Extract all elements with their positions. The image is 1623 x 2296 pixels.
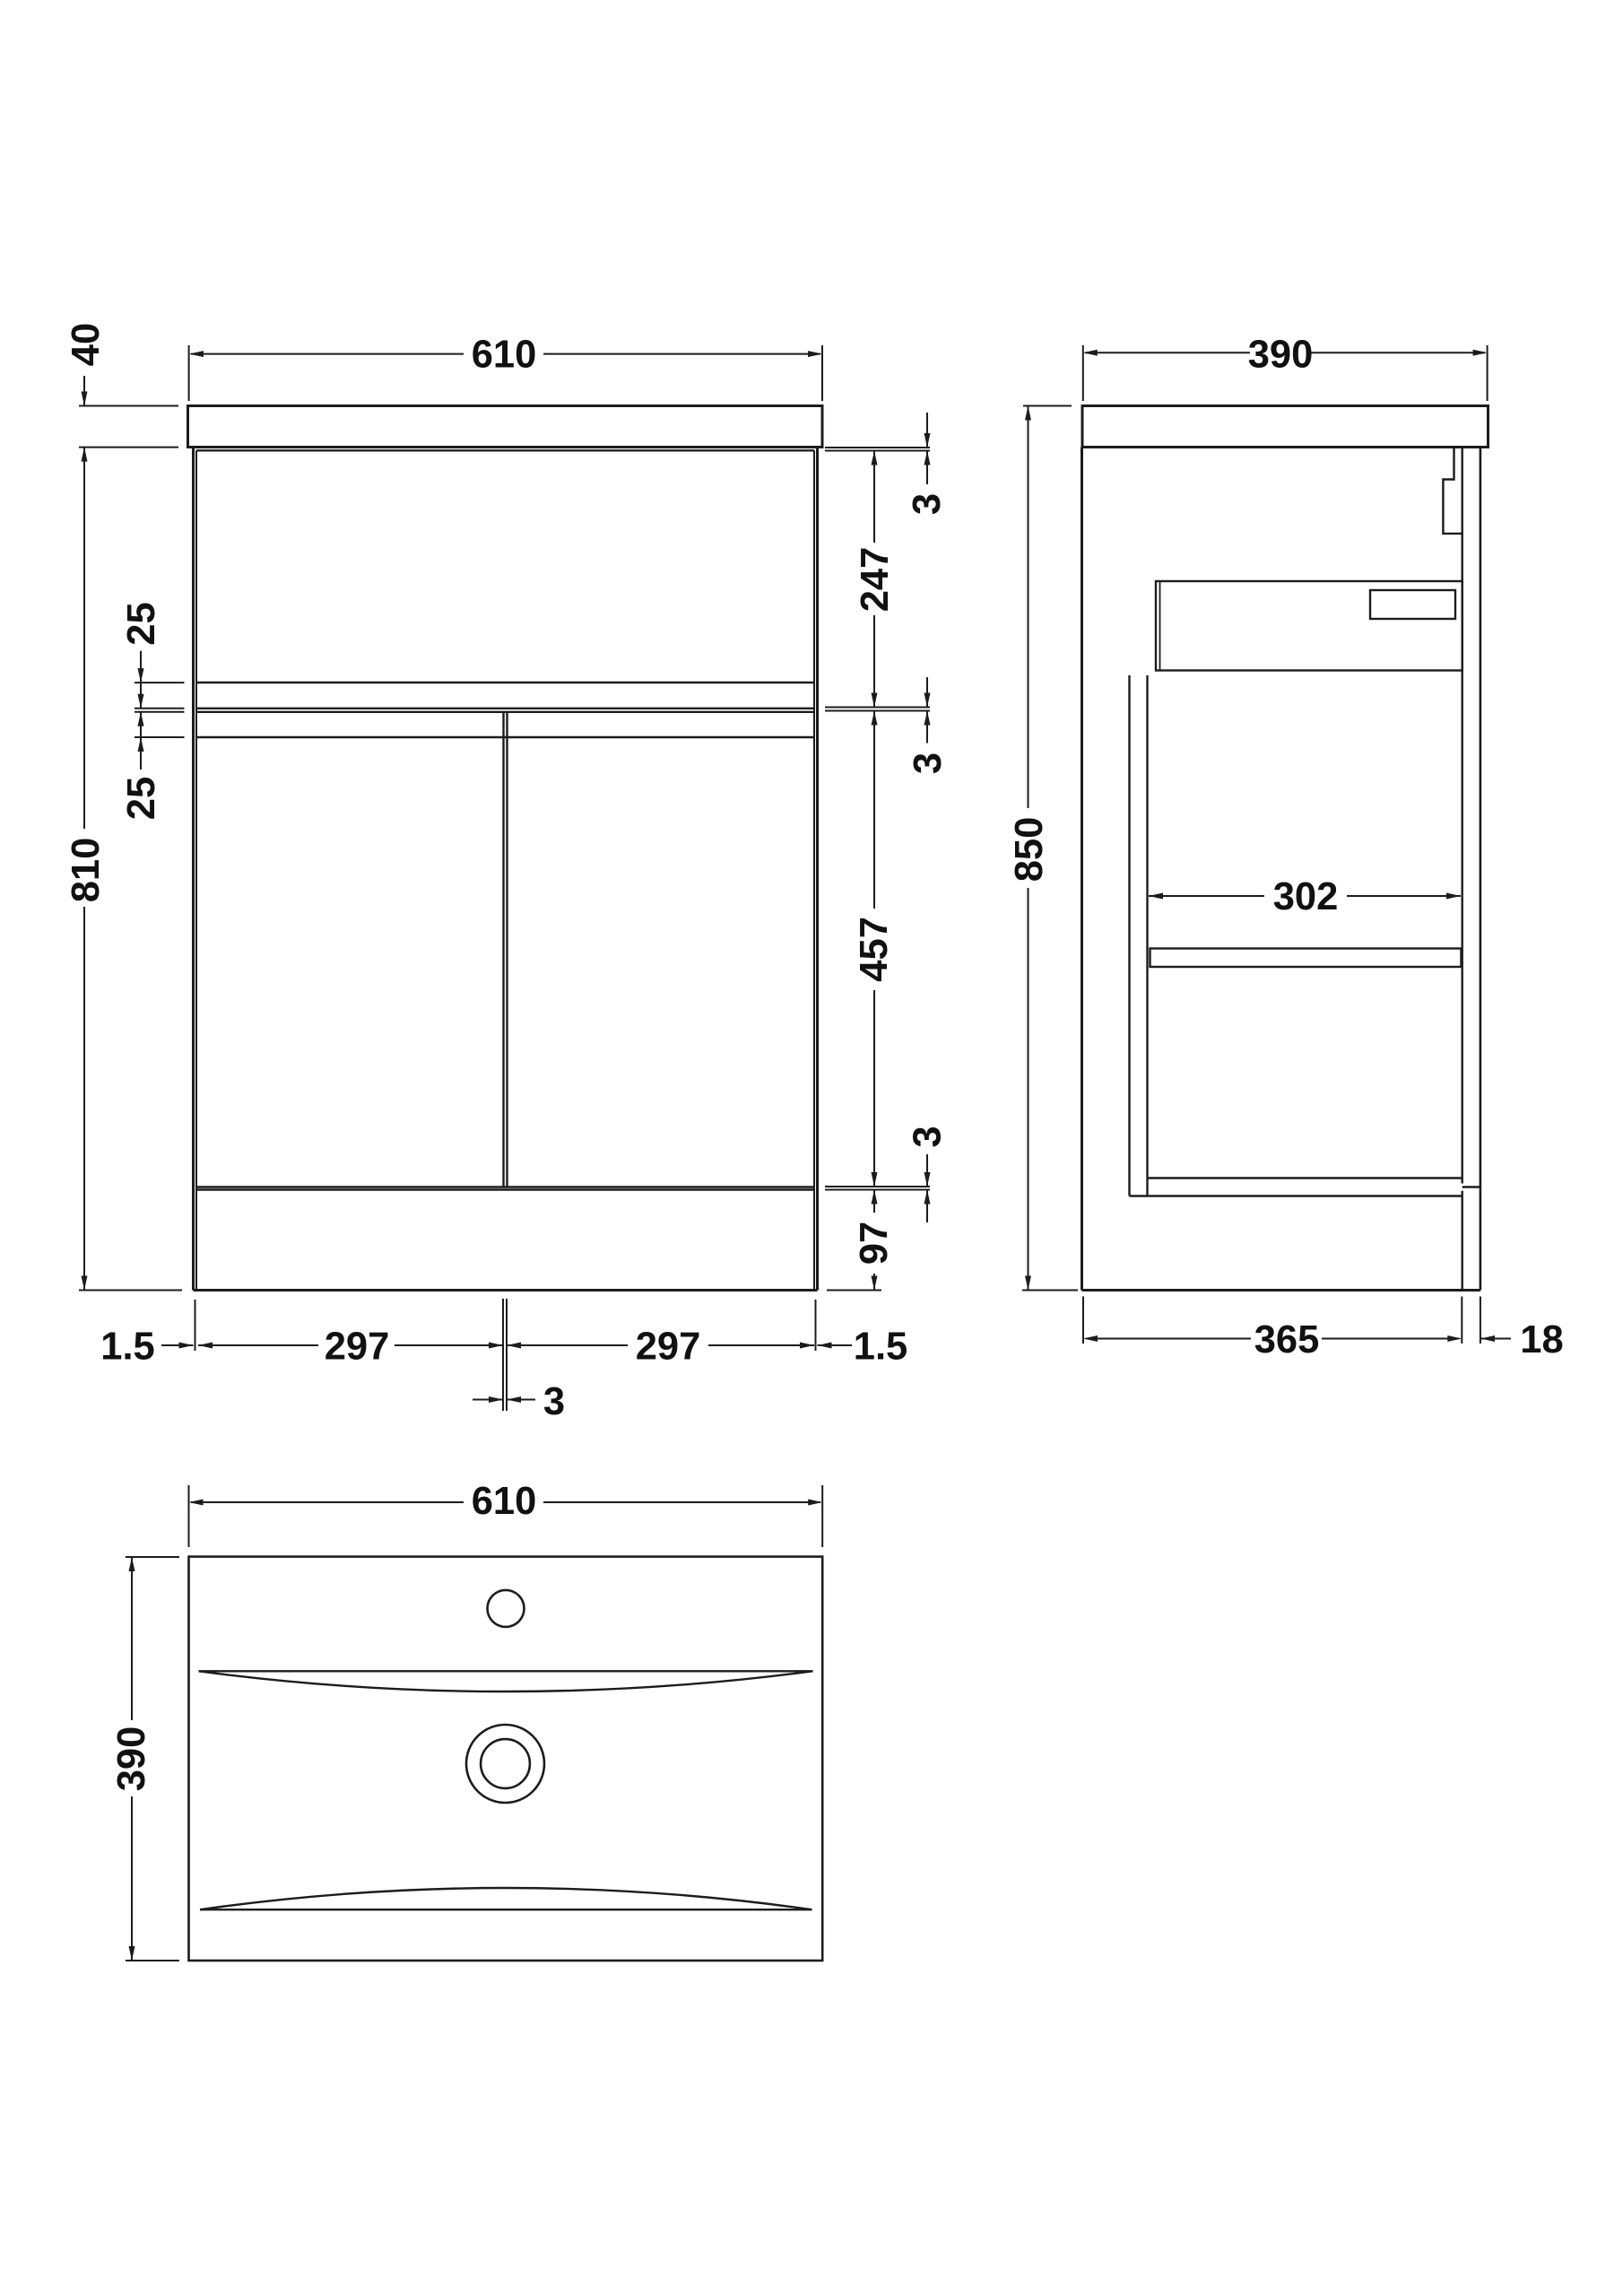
svg-text:97: 97 [853, 1222, 896, 1265]
svg-text:390: 390 [1248, 334, 1314, 377]
svg-text:1.5: 1.5 [854, 1326, 907, 1369]
svg-text:3: 3 [543, 1380, 565, 1423]
svg-text:25: 25 [120, 777, 163, 820]
svg-text:365: 365 [1254, 1318, 1320, 1361]
svg-text:3: 3 [907, 1126, 950, 1147]
svg-text:40: 40 [65, 323, 108, 366]
svg-text:25: 25 [120, 602, 163, 645]
svg-text:297: 297 [636, 1326, 701, 1369]
svg-text:810: 810 [65, 838, 108, 903]
svg-text:390: 390 [110, 1726, 153, 1792]
svg-text:1.5: 1.5 [100, 1326, 154, 1369]
svg-text:610: 610 [472, 1480, 537, 1523]
svg-text:850: 850 [1008, 817, 1051, 883]
svg-text:302: 302 [1273, 875, 1339, 918]
svg-text:610: 610 [472, 334, 537, 377]
svg-text:3: 3 [906, 493, 949, 515]
svg-text:457: 457 [853, 917, 896, 982]
svg-text:3: 3 [907, 752, 950, 774]
svg-text:297: 297 [325, 1326, 390, 1369]
svg-text:18: 18 [1520, 1318, 1563, 1361]
svg-text:247: 247 [854, 547, 897, 613]
